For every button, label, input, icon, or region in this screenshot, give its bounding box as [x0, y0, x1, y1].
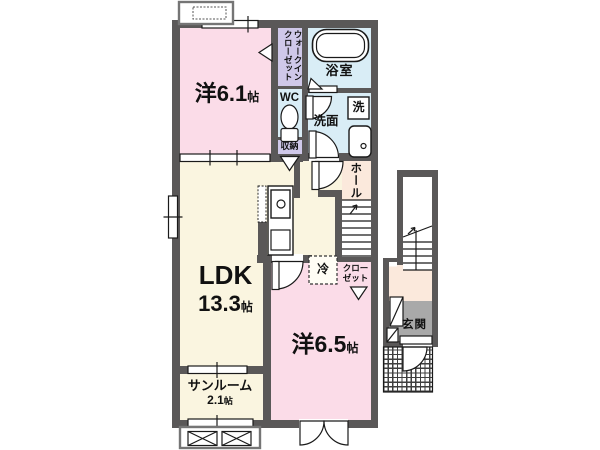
sink-icon [349, 126, 371, 157]
hall-label: ホール [348, 162, 361, 202]
closet-label: クロー ゼット [341, 263, 370, 284]
bedroom2-label: 洋6.5帖 [275, 331, 375, 357]
ac-unit-box [179, 2, 233, 24]
ldk-label: LDK 13.3帖 [167, 261, 284, 316]
annex-stairs [403, 177, 432, 270]
washroom-label: 洗面 [304, 114, 348, 128]
ldk-size: 13.3帖 [167, 291, 284, 316]
ldk-hall-door-arc [316, 162, 344, 190]
sunroom-label: サンルーム 2.1帖 [177, 379, 263, 408]
floorplan: 洋6.1帖 ウォークイン クローゼット WC 浴室 洗面 洗 収納 ホール LD… [0, 0, 600, 450]
sunroom-name: サンルーム [177, 379, 263, 394]
entrance-step [400, 336, 432, 344]
bedroom1-label: 洋6.1帖 [181, 81, 273, 106]
bath-door-triangle [308, 79, 322, 90]
wic-door-triangle [259, 44, 272, 61]
bedroom1-unit: 帖 [247, 90, 259, 104]
annex-wall-notch [389, 262, 397, 267]
ldk-name: LDK [167, 261, 284, 291]
washer-label: 洗 [348, 101, 369, 115]
terrace-door-right-arc [324, 421, 348, 445]
closet-door-triangle [351, 287, 368, 300]
terrace-door-left-arc [300, 421, 324, 445]
entrance-door-arc [403, 347, 427, 371]
wic-label: ウォークイン クローゼット [278, 30, 302, 86]
main-stairs [342, 200, 371, 257]
storage-door-triangle [281, 157, 300, 171]
wc-label: WC [277, 92, 302, 105]
storage-label: 収納 [277, 141, 302, 151]
entrance-details [384, 297, 433, 392]
sunroom-bottom-window [188, 419, 253, 427]
bathtub-icon [313, 30, 369, 62]
windows [164, 16, 271, 431]
refrigerator-label: 冷 [309, 263, 337, 277]
bathroom-label: 浴室 [308, 64, 371, 79]
bedroom1-sliding-door [180, 154, 270, 162]
toilet-icon [281, 105, 298, 142]
kitchen-counter-icon [258, 186, 293, 255]
balcony [180, 427, 260, 448]
sunroom-size: 2.1帖 [177, 394, 263, 408]
bedroom1-name: 洋6.1 [195, 81, 248, 106]
entrance-label: 玄関 [402, 319, 427, 332]
